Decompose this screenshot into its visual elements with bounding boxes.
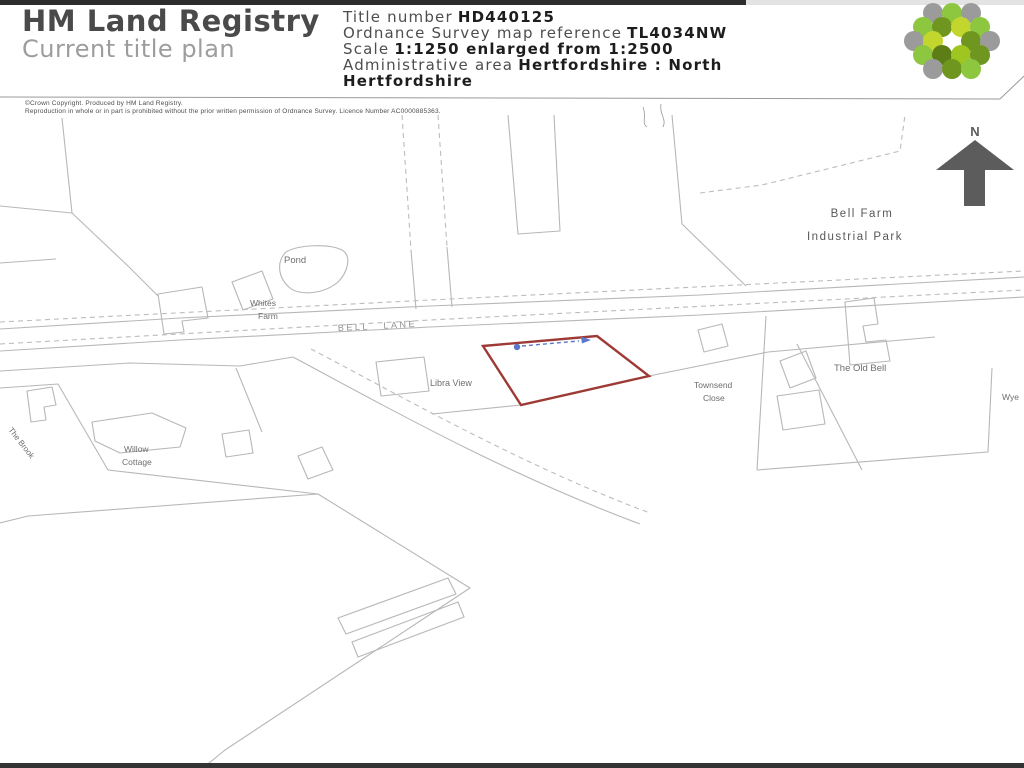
title-plan-page: HM Land Registry Current title plan Titl… [0,0,1024,768]
large-field-boundary [0,494,470,768]
bell-lane-north-edge [0,277,1024,329]
handwritten-mark [643,104,664,127]
map-label-close: Close [703,393,725,403]
map-label-right-edge: Wye [1002,392,1019,402]
map-label-old-bell: The Old Bell [834,363,886,374]
map-label-cottage: Cottage [122,457,152,467]
bottom-window-bar [0,763,1024,768]
map-label-pond: Pond [284,255,306,266]
pond-outline [280,246,348,293]
map-dashed-linework [0,115,1024,513]
map-label-industrial-park: Industrial Park [807,231,903,243]
north-label: N [970,124,979,139]
old-bell-building [845,298,890,365]
title-plan-map: N Pond Whites Farm BELL LANE Bell Farm I… [0,0,1024,768]
whites-farm-building [158,287,208,334]
map-label-farm: Farm [258,311,278,321]
annotation-arrow-origin [514,344,520,350]
map-label-whites: Whites [250,298,276,308]
libra-view-building [376,357,429,396]
registered-parcel-outline [483,336,649,405]
map-label-the-brook: The Brook [6,426,36,461]
header-rule [0,76,1024,99]
map-label-bell-farm: Bell Farm [831,208,894,220]
map-label-willow: Willow [124,444,149,454]
map-label-bell-lane: BELL LANE [338,319,418,333]
map-label-townsend: Townsend [694,380,733,390]
map-label-libra-view: Libra View [430,378,472,388]
north-arrow-icon [936,140,1014,206]
